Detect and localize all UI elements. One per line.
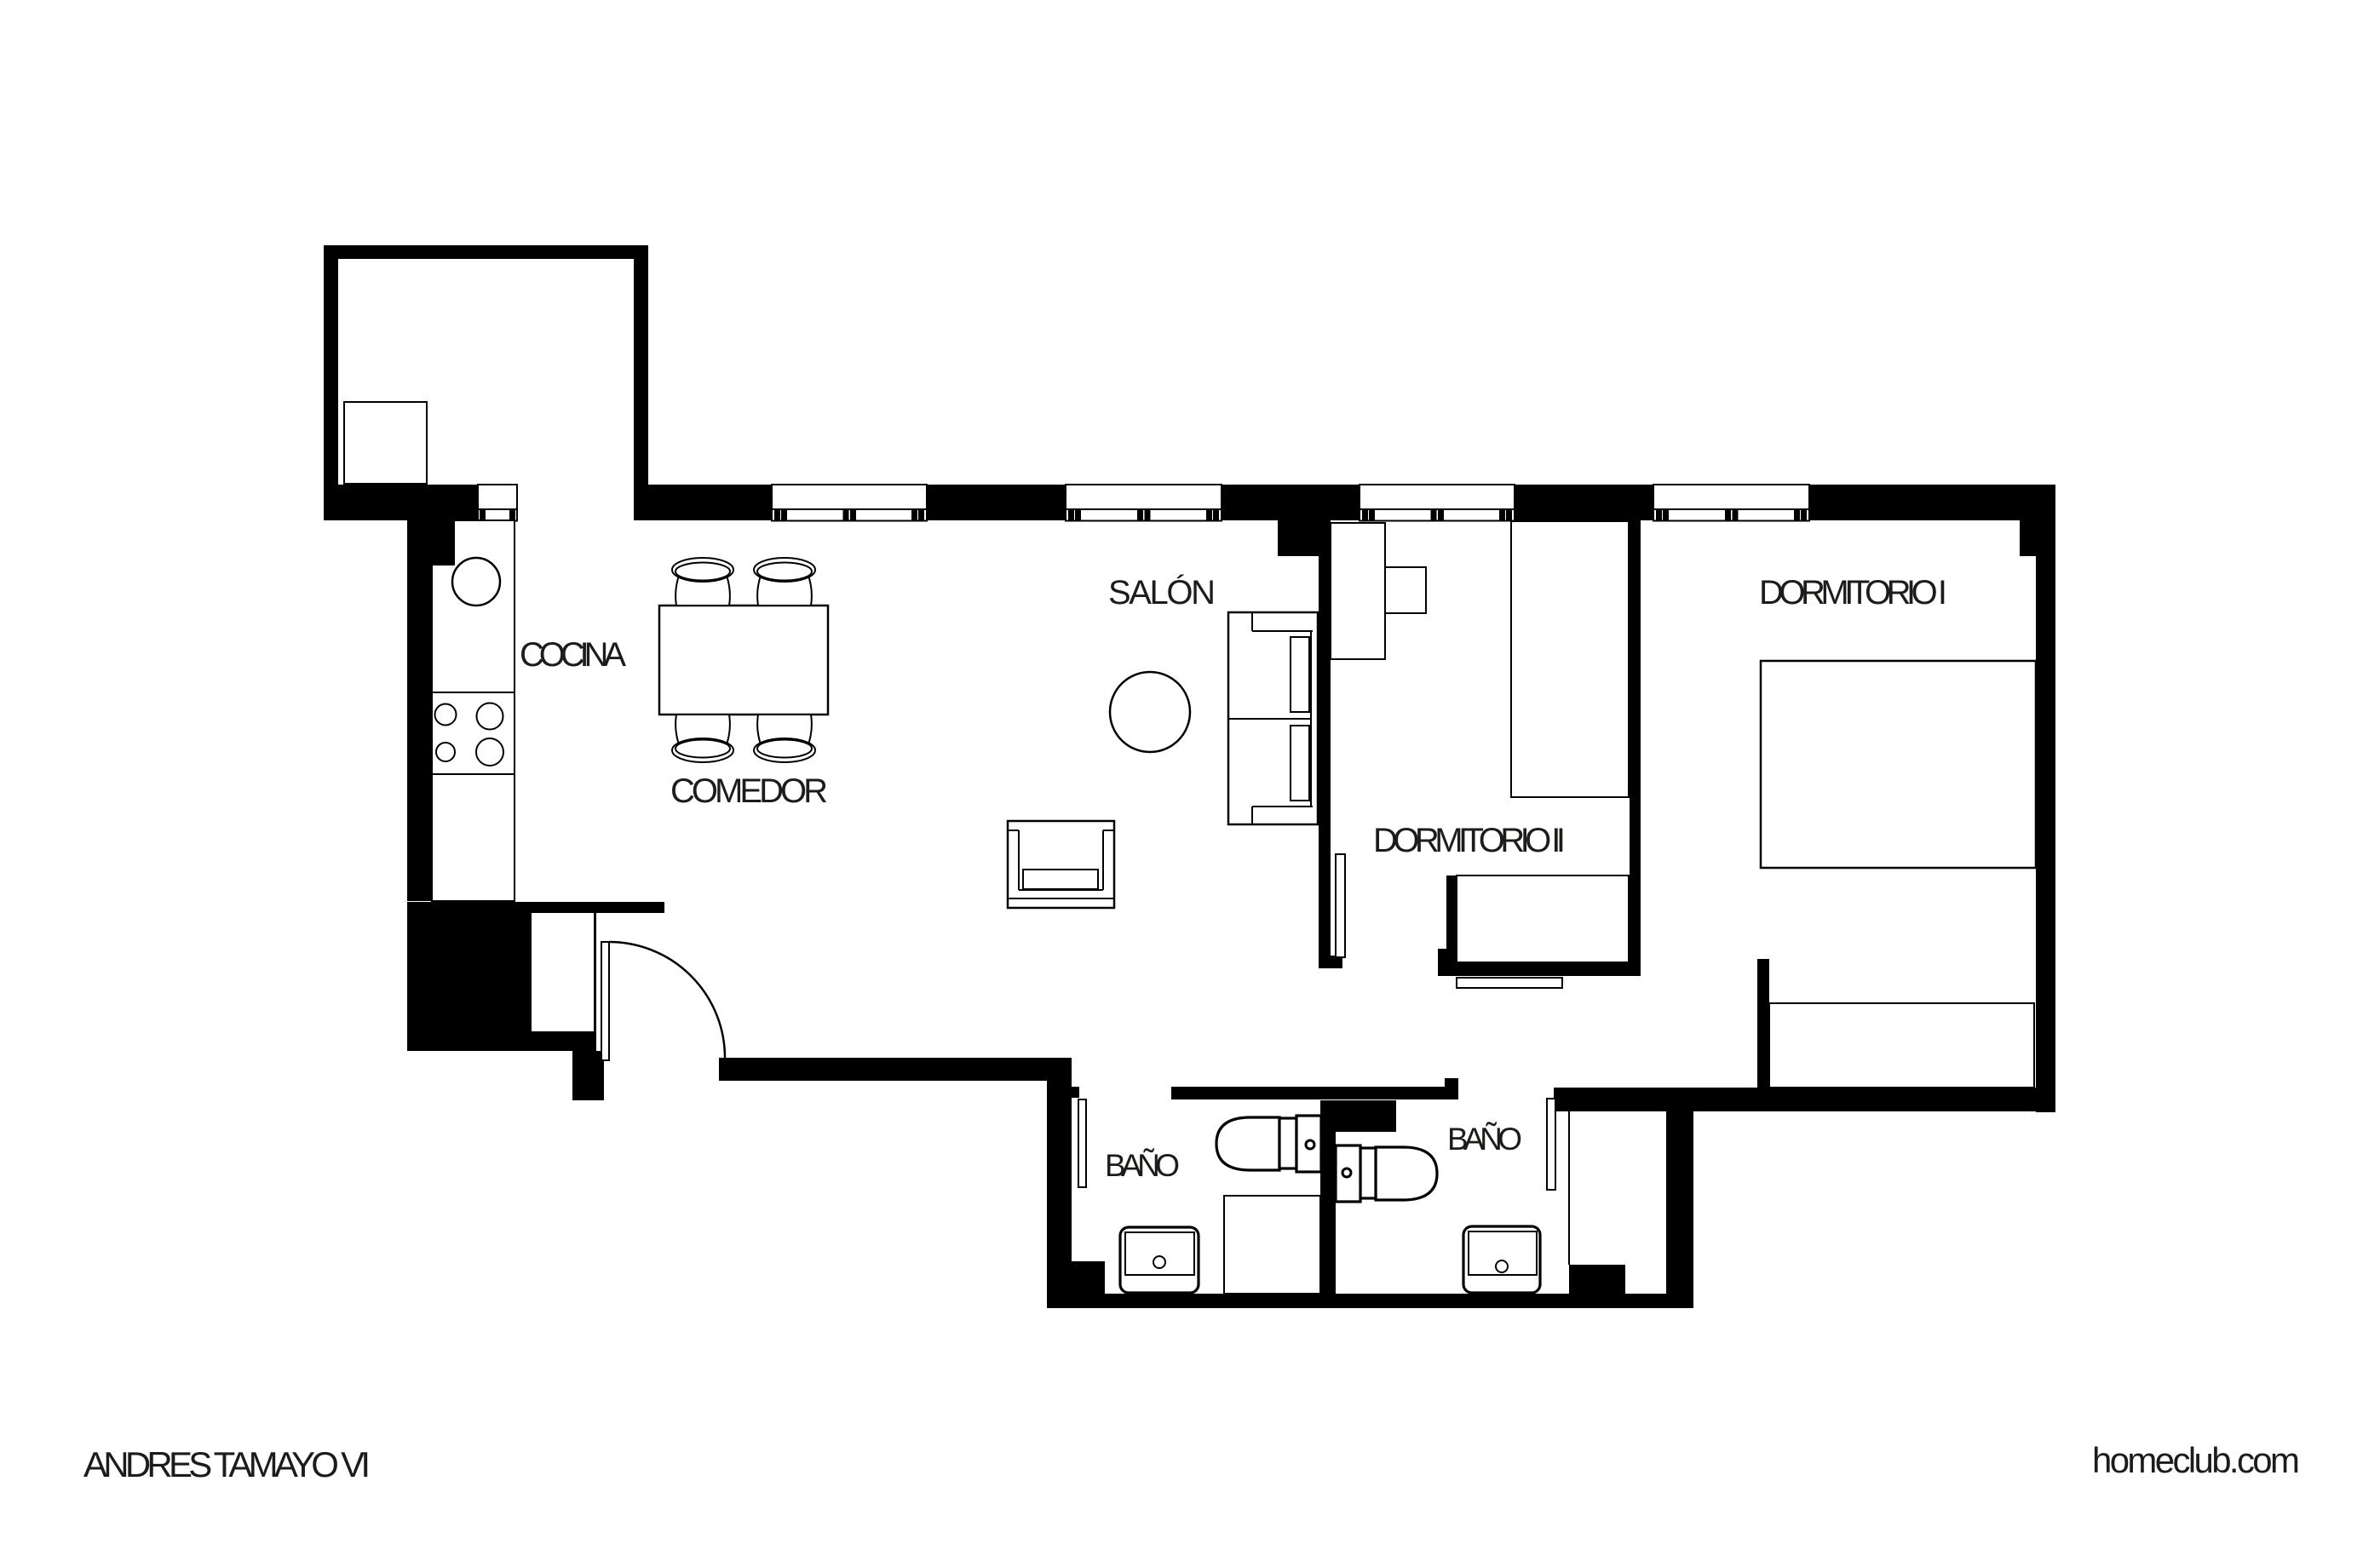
svg-text:BAÑO: BAÑO (1105, 1148, 1180, 1183)
svg-text:COCINA: COCINA (520, 636, 626, 674)
svg-text:DORMITORIO I: DORMITORIO I (1759, 574, 1947, 611)
svg-text:ANDRES TAMAYO VI: ANDRES TAMAYO VI (83, 1444, 371, 1484)
svg-text:COMEDOR: COMEDOR (670, 772, 828, 810)
svg-text:DORMITORIO II: DORMITORIO II (1373, 822, 1566, 859)
svg-text:SALÓN: SALÓN (1108, 573, 1216, 611)
svg-text:BAÑO: BAÑO (1447, 1122, 1522, 1157)
svg-text:homeclub.com: homeclub.com (2092, 1440, 2300, 1480)
